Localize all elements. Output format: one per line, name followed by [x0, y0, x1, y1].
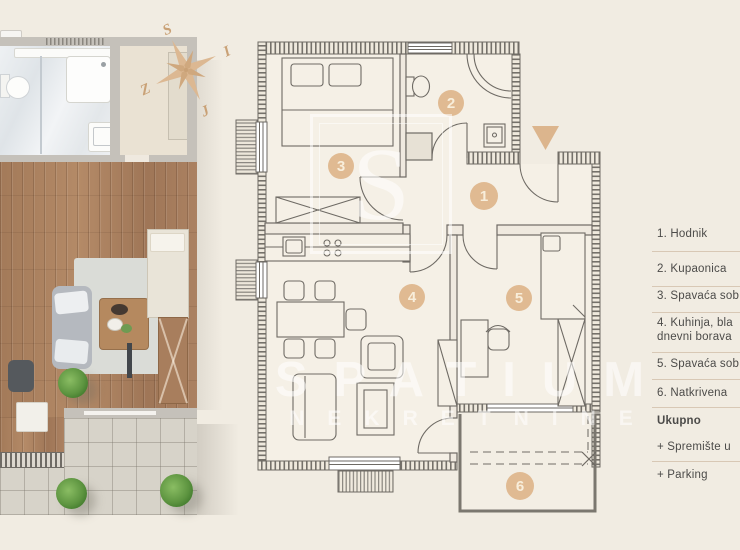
living-window [329, 457, 400, 470]
compass-south-label: J [198, 103, 213, 121]
room-badge-1: 1 [470, 182, 498, 210]
legend-item-5: 5. Spavaća sob [657, 357, 739, 371]
legend-item-6: 6. Natkrivena [657, 386, 727, 400]
double-bed [282, 58, 393, 146]
coffee-table-4 [357, 383, 394, 435]
legend-item-3: 3. Spavaća sob [657, 289, 739, 303]
shaft-column [406, 133, 432, 160]
washbasin [484, 124, 505, 147]
room-badge-4: 4 [399, 284, 425, 310]
svg-text:3: 3 [337, 158, 345, 175]
svg-text:2: 2 [447, 95, 455, 112]
room-badge-6: 6 [506, 472, 534, 500]
legend-extra-storage: + Spremište u [657, 440, 731, 454]
svg-text:4: 4 [408, 289, 417, 306]
tall-cabinet [438, 340, 457, 406]
wardrobe-5 [558, 319, 585, 406]
legend-divider [652, 312, 740, 313]
compass-rose: S I J Z [118, 2, 253, 140]
legend-extra-parking: + Parking [657, 468, 708, 482]
entrance-arrow [532, 126, 559, 150]
room-badge-2: 2 [438, 90, 464, 116]
legend-panel: 1. Hodnik 2. Kupaonica 3. Spavaća sob 4.… [652, 0, 740, 550]
svg-text:1: 1 [480, 188, 488, 205]
armchair [361, 336, 403, 378]
compass-west-label: Z [137, 81, 153, 100]
legend-divider [652, 286, 740, 287]
main-floorplan: S I J Z 1 2 3 4 5 6 [0, 0, 740, 550]
toilet [406, 76, 430, 97]
legend-divider [652, 407, 740, 408]
legend-item-4: 4. Kuhinja, bla dnevni borava [657, 316, 733, 344]
room-badge-3: 3 [328, 153, 354, 179]
desk-chair-5 [488, 329, 509, 350]
legend-divider [652, 251, 740, 252]
sofa-4 [293, 374, 336, 440]
wardrobe-3 [276, 197, 360, 223]
floorplan-page: { "compass": {"north": "S", "east": "I",… [0, 0, 740, 550]
svg-text:5: 5 [515, 290, 523, 307]
legend-divider [652, 379, 740, 380]
legend-total: Ukupno [657, 414, 701, 428]
bathroom-window [408, 43, 452, 53]
legend-item-2: 2. Kupaonica [657, 262, 727, 276]
single-bed [541, 233, 585, 319]
compass-east-label: I [220, 43, 234, 61]
kitchen-counter [265, 234, 410, 261]
room-badge-5: 5 [506, 285, 532, 311]
left-window-2 [256, 262, 267, 298]
left-window-1 [256, 122, 267, 172]
svg-text:6: 6 [516, 478, 524, 495]
cooktop-burner [324, 240, 330, 246]
window-shutter-1 [236, 120, 257, 174]
compass-north-label: S [160, 21, 174, 39]
window-shutter-2 [236, 260, 257, 300]
legend-divider [652, 352, 740, 353]
radiator [338, 471, 393, 492]
legend-item-1: 1. Hodnik [657, 227, 707, 241]
legend-divider [652, 461, 740, 462]
